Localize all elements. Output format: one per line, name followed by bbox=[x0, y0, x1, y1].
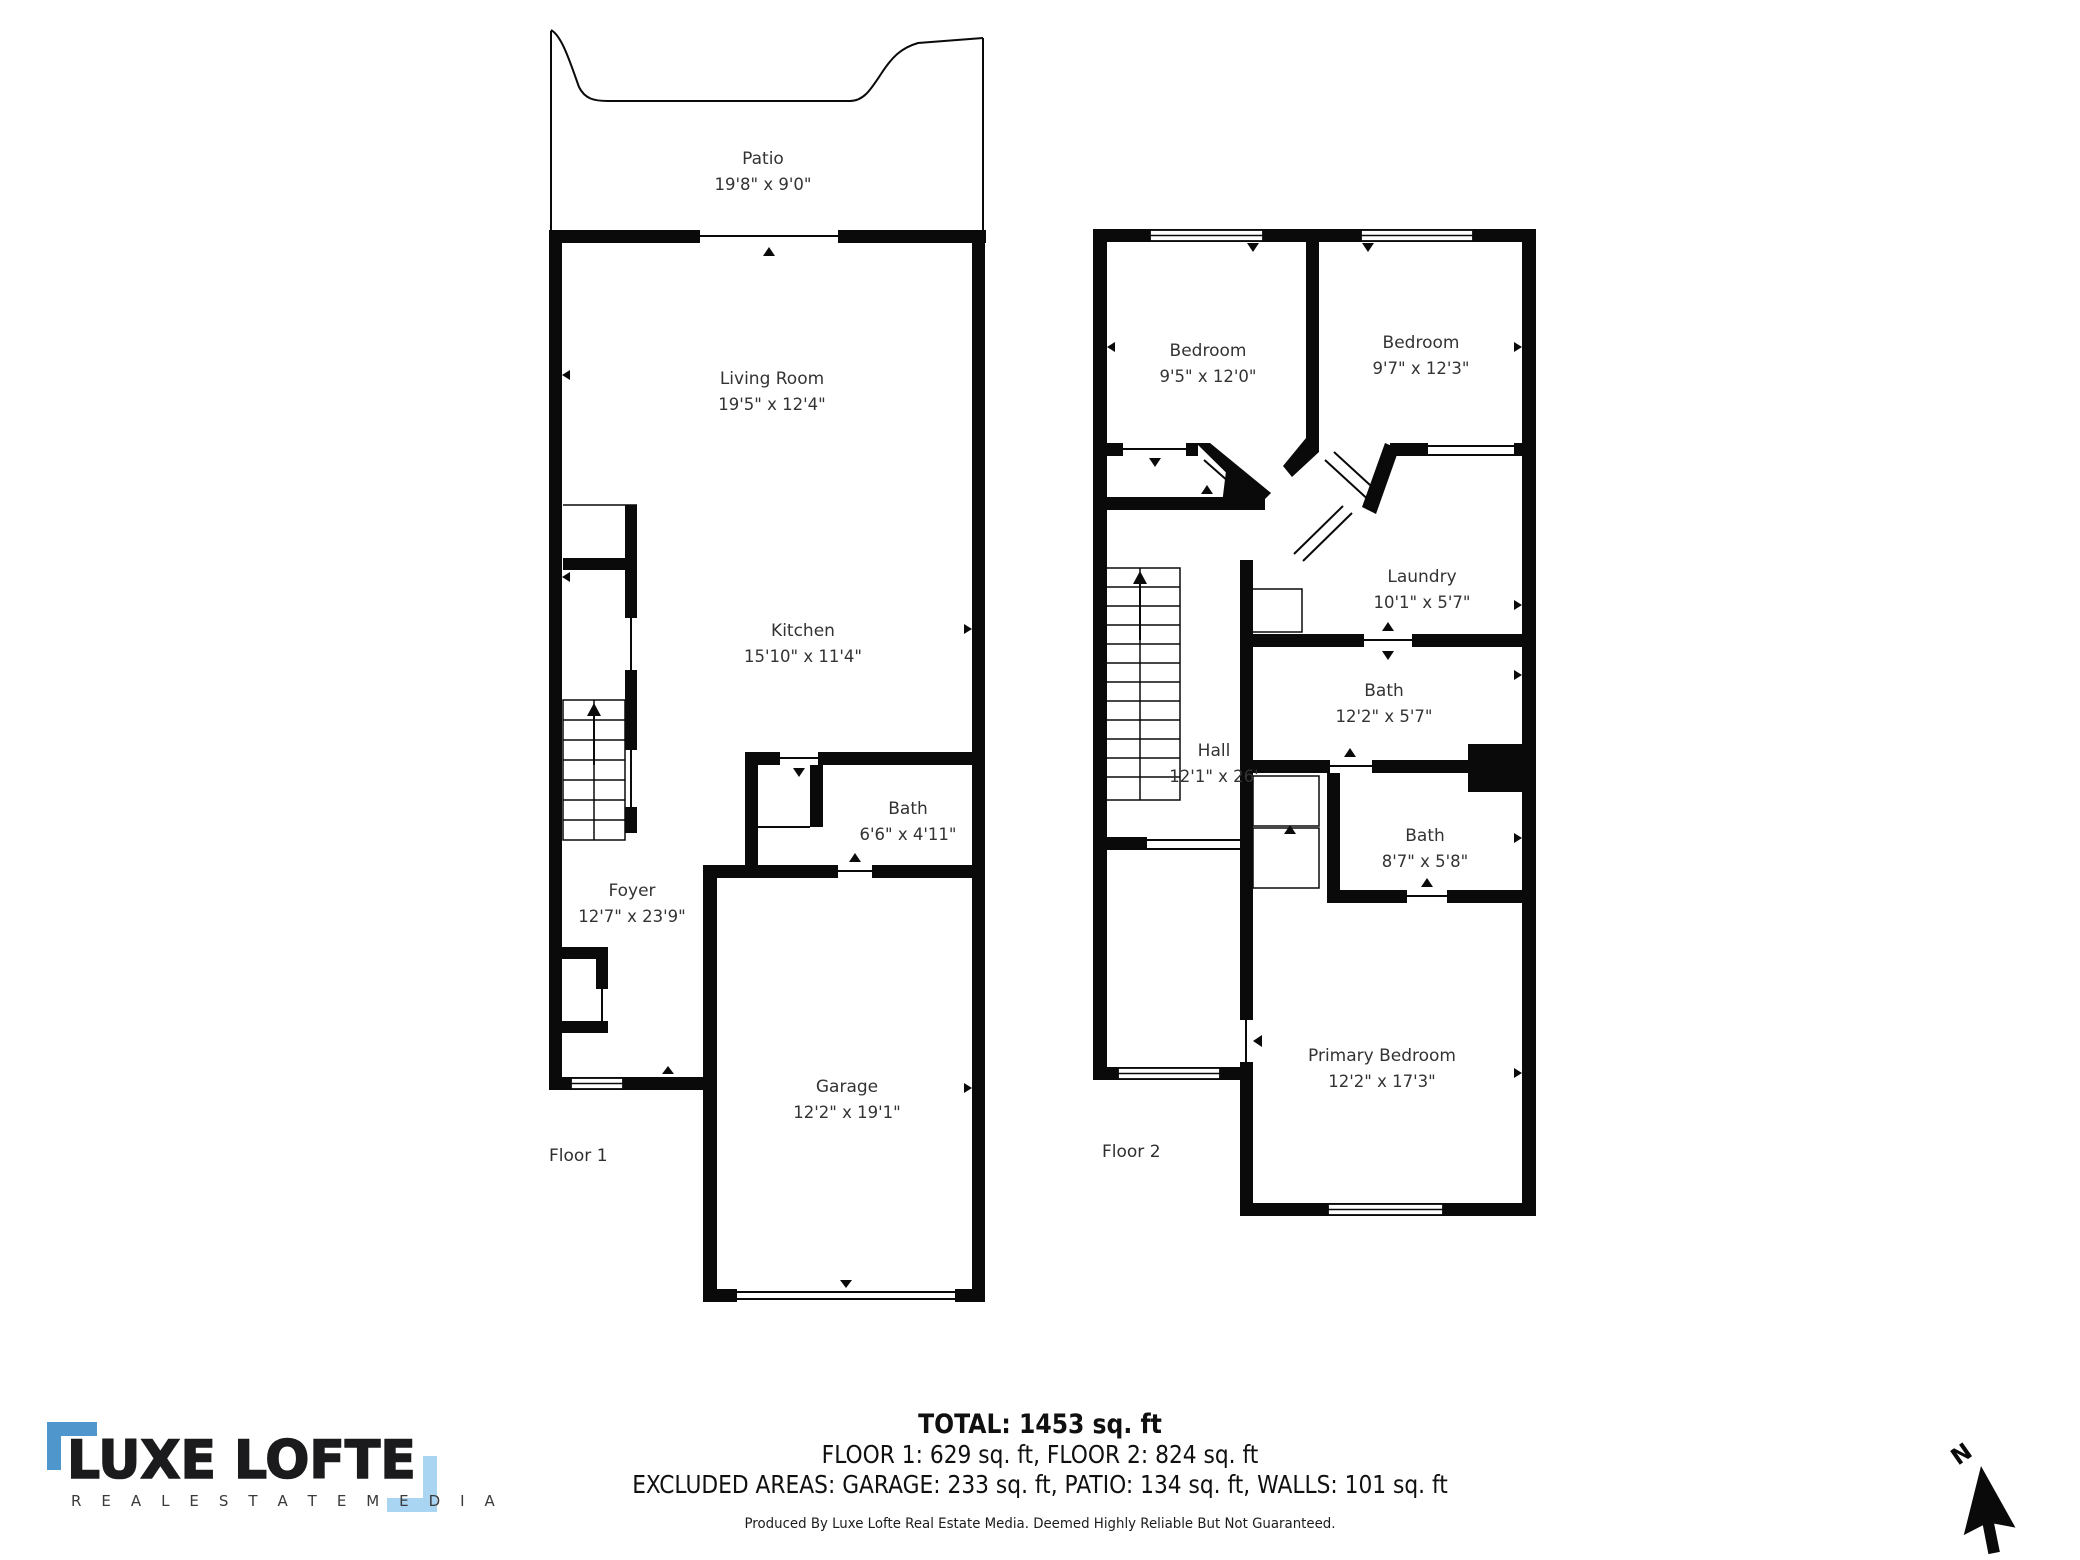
luxe-lofte-logo: LUXE LOFTE R E A L E S T A T E M E D I A bbox=[47, 1420, 467, 1520]
room-label-kitchen: Kitchen 15'10" x 11'4" bbox=[744, 619, 862, 669]
room-label-hall: Hall 12'1" x 26' bbox=[1169, 739, 1258, 789]
stairs-floor2 bbox=[1100, 568, 1180, 800]
floorplan-page: N Patio 19'8" x 9'0" Living Room 19'5" x… bbox=[0, 0, 2080, 1560]
room-label-primary-bedroom: Primary Bedroom 12'2" x 17'3" bbox=[1308, 1044, 1456, 1094]
room-label-laundry: Laundry 10'1" x 5'7" bbox=[1374, 565, 1471, 615]
window-hall-left bbox=[1118, 1068, 1220, 1079]
room-label-living-room: Living Room 19'5" x 12'4" bbox=[718, 367, 826, 417]
floor1-label: Floor 1 bbox=[549, 1146, 608, 1166]
room-label-bath2: Bath 12'2" x 5'7" bbox=[1336, 679, 1433, 729]
window-foyer bbox=[571, 1078, 623, 1089]
room-label-bath3: Bath 8'7" x 5'8" bbox=[1382, 824, 1469, 874]
room-label-patio: Patio 19'8" x 9'0" bbox=[715, 147, 812, 197]
window-bedroom2 bbox=[1361, 230, 1473, 241]
room-label-foyer: Foyer 12'7" x 23'9" bbox=[578, 879, 686, 929]
room-label-bath1: Bath 6'6" x 4'11" bbox=[860, 797, 957, 847]
logo-tagline: R E A L E S T A T E M E D I A bbox=[71, 1492, 502, 1510]
stairs-floor1 bbox=[563, 700, 625, 840]
room-label-bedroom2: Bedroom 9'7" x 12'3" bbox=[1373, 331, 1470, 381]
window-primary bbox=[1328, 1204, 1443, 1215]
window-bedroom1 bbox=[1150, 230, 1263, 241]
logo-brand-name: LUXE LOFTE bbox=[67, 1430, 416, 1491]
room-label-garage: Garage 12'2" x 19'1" bbox=[793, 1075, 901, 1125]
room-label-bedroom1: Bedroom 9'5" x 12'0" bbox=[1160, 339, 1257, 389]
floor2-label: Floor 2 bbox=[1102, 1142, 1161, 1162]
floorplan-drawing: N bbox=[0, 0, 2080, 1560]
